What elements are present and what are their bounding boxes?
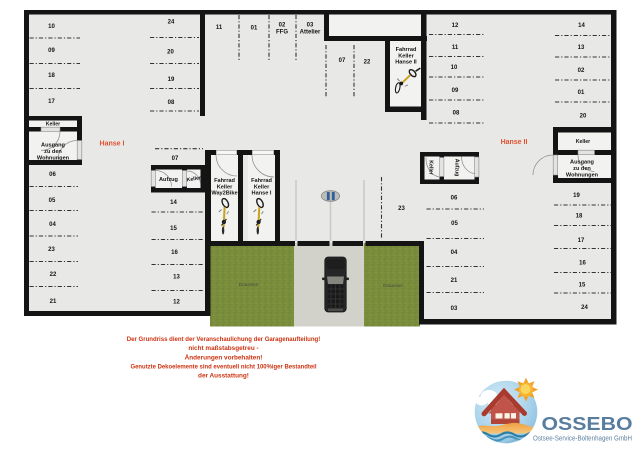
svg-text:21: 21 xyxy=(50,299,57,305)
svg-text:08: 08 xyxy=(168,100,175,106)
svg-text:14: 14 xyxy=(170,200,177,206)
svg-text:12: 12 xyxy=(452,23,459,29)
svg-text:zu den: zu den xyxy=(573,166,591,172)
svg-text:04: 04 xyxy=(451,250,458,256)
svg-text:20: 20 xyxy=(167,50,174,56)
svg-text:18: 18 xyxy=(48,73,55,79)
svg-text:01: 01 xyxy=(578,90,585,96)
svg-text:zu den: zu den xyxy=(44,149,62,155)
svg-text:23: 23 xyxy=(48,247,55,253)
svg-text:FFG: FFG xyxy=(276,30,288,36)
svg-text:01: 01 xyxy=(251,26,258,32)
svg-text:OSSEBO: OSSEBO xyxy=(542,414,633,434)
svg-text:Draussen: Draussen xyxy=(239,282,259,287)
svg-text:Ostsee-Service-Boltenhagen Gmb: Ostsee-Service-Boltenhagen GmbH xyxy=(533,435,632,443)
svg-text:Keller: Keller xyxy=(428,160,434,174)
svg-text:02: 02 xyxy=(279,23,286,29)
svg-text:09: 09 xyxy=(452,88,459,94)
svg-text:Keller: Keller xyxy=(217,184,233,190)
svg-text:Draussen: Draussen xyxy=(383,283,403,288)
svg-text:18: 18 xyxy=(576,214,583,220)
svg-text:15: 15 xyxy=(170,226,177,232)
svg-text:17: 17 xyxy=(48,99,55,105)
svg-text:09: 09 xyxy=(48,48,55,54)
svg-text:der Ausstattung!: der Ausstattung! xyxy=(198,373,249,380)
svg-text:07: 07 xyxy=(172,156,179,162)
svg-text:24: 24 xyxy=(168,20,175,26)
svg-text:20: 20 xyxy=(580,114,587,120)
svg-text:08: 08 xyxy=(453,111,460,117)
svg-text:Der Grundriss dient der Verans: Der Grundriss dient der Veranschaulichun… xyxy=(127,336,321,343)
svg-text:12: 12 xyxy=(173,300,180,306)
svg-text:Wohnungen: Wohnungen xyxy=(37,156,70,162)
svg-text:15: 15 xyxy=(579,283,586,289)
svg-text:19: 19 xyxy=(168,77,175,83)
svg-text:05: 05 xyxy=(451,221,458,227)
svg-text:10: 10 xyxy=(48,24,55,30)
svg-text:Aufzug: Aufzug xyxy=(159,177,179,183)
svg-text:Fahrrad: Fahrrad xyxy=(214,178,235,184)
svg-text:Wohnungen: Wohnungen xyxy=(566,173,599,179)
svg-text:11: 11 xyxy=(452,45,459,51)
svg-text:Ausgang: Ausgang xyxy=(41,143,66,149)
svg-text:07: 07 xyxy=(339,58,346,64)
svg-text:Aufzug: Aufzug xyxy=(454,159,460,177)
svg-text:Keller: Keller xyxy=(46,122,60,128)
svg-text:16: 16 xyxy=(171,250,178,256)
svg-text:06: 06 xyxy=(451,196,458,202)
svg-text:17: 17 xyxy=(578,238,585,244)
svg-text:Keller: Keller xyxy=(576,139,590,145)
svg-text:Hanse II: Hanse II xyxy=(395,60,417,66)
svg-text:Fahrrad: Fahrrad xyxy=(251,178,272,184)
svg-text:23: 23 xyxy=(398,206,405,212)
svg-text:Keller: Keller xyxy=(398,53,414,59)
svg-text:13: 13 xyxy=(173,275,180,281)
svg-text:19: 19 xyxy=(573,193,580,199)
svg-text:03: 03 xyxy=(451,306,458,312)
svg-text:13: 13 xyxy=(578,45,585,51)
svg-text:03: 03 xyxy=(307,23,314,29)
svg-text:24: 24 xyxy=(581,305,588,311)
svg-text:14: 14 xyxy=(578,23,585,29)
svg-text:04: 04 xyxy=(49,222,56,228)
svg-text:Genutzte Dekoelemente sind eve: Genutzte Dekoelemente sind eventuell nic… xyxy=(131,364,317,371)
svg-text:Hanse I: Hanse I xyxy=(252,191,272,197)
svg-text:22: 22 xyxy=(50,272,57,278)
svg-text:11: 11 xyxy=(216,25,223,31)
svg-text:22: 22 xyxy=(364,60,371,66)
svg-text:Hanse I: Hanse I xyxy=(100,141,125,148)
svg-text:06: 06 xyxy=(49,172,56,178)
svg-text:05: 05 xyxy=(49,198,56,204)
svg-text:nicht maßstabsgetreu -: nicht maßstabsgetreu - xyxy=(188,345,258,352)
svg-text:16: 16 xyxy=(579,261,586,267)
svg-text:21: 21 xyxy=(451,278,458,284)
svg-text:Keller: Keller xyxy=(254,184,270,190)
svg-text:Ausgang: Ausgang xyxy=(570,160,595,166)
svg-text:Hanse II: Hanse II xyxy=(501,139,528,146)
svg-text:Attelier: Attelier xyxy=(300,30,321,36)
svg-text:Fahrrad: Fahrrad xyxy=(396,47,417,53)
svg-text:02: 02 xyxy=(578,68,585,74)
svg-text:Way2Bike: Way2Bike xyxy=(211,191,237,197)
svg-text:Änderungen vorbehalten!: Änderungen vorbehalten! xyxy=(185,353,263,361)
svg-text:10: 10 xyxy=(451,65,458,71)
